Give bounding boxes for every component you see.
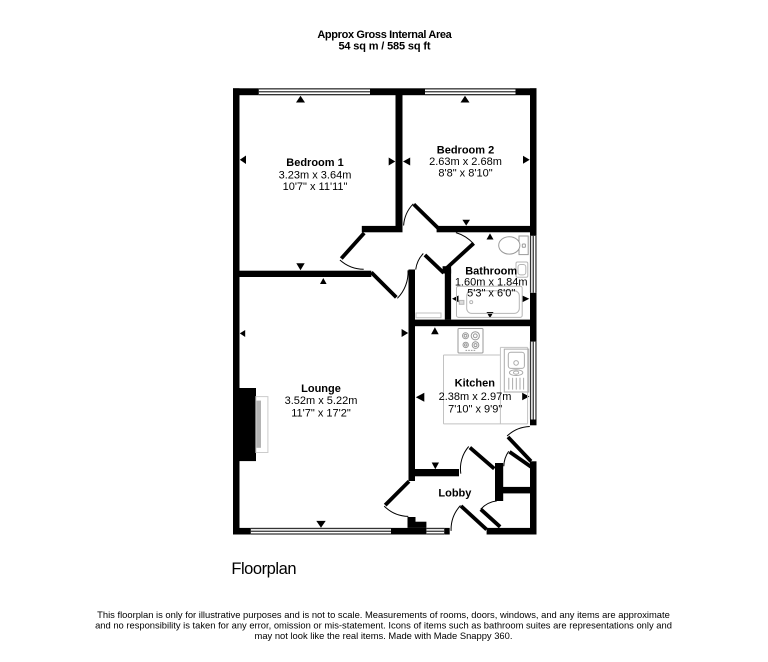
svg-text:Lobby: Lobby [438,487,472,499]
svg-text:Bedroom 2: Bedroom 2 [437,145,494,157]
svg-text:2.63m x 2.68m: 2.63m x 2.68m [429,156,502,168]
svg-text:11'7" x 17'2": 11'7" x 17'2" [291,407,351,419]
svg-text:3.52m x 5.22m: 3.52m x 5.22m [285,395,358,407]
svg-text:Bedroom 1: Bedroom 1 [286,157,343,169]
svg-text:10'7" x 11'11": 10'7" x 11'11" [283,181,348,193]
svg-text:7'10" x 9'9": 7'10" x 9'9" [448,404,502,416]
svg-text:may not look like the real ite: may not look like the real items. Made w… [255,630,513,641]
svg-text:Floorplan: Floorplan [231,560,296,578]
svg-text:and no responsibility is taken: and no responsibility is taken for any e… [95,619,672,630]
svg-text:This floorplan is only for ill: This floorplan is only for illustrative … [97,609,670,620]
svg-text:2.38m x 2.97m: 2.38m x 2.97m [439,391,512,403]
svg-text:Approx Gross Internal Area: Approx Gross Internal Area [317,29,452,41]
svg-text:8'8" x 8'10": 8'8" x 8'10" [438,167,492,179]
svg-text:Lounge: Lounge [301,383,341,395]
svg-text:Kitchen: Kitchen [455,378,496,390]
svg-text:5'3" x 6'0": 5'3" x 6'0" [467,288,515,300]
svg-text:54 sq m / 585 sq ft: 54 sq m / 585 sq ft [338,40,430,52]
